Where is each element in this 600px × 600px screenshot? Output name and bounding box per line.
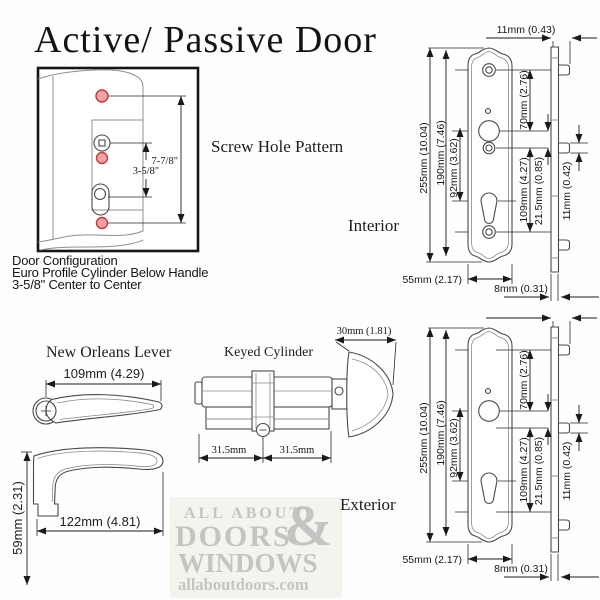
- screw-hole-pattern-heading: Screw Hole Pattern: [211, 137, 343, 157]
- dim-plate-thickness: 8mm (0.31): [494, 563, 548, 575]
- dim-backset-depth: 11mm (0.43): [497, 24, 556, 36]
- screw-hole-marker: [97, 218, 108, 229]
- exterior-view-label: Exterior: [340, 495, 396, 515]
- dim-plate-thickness: 8mm (0.31): [494, 283, 548, 295]
- door-configuration-caption: Door Configuration Euro Profile Cylinder…: [12, 255, 208, 291]
- screw-hole-pattern-diagram: 7-7/8" 3-5/8": [38, 68, 198, 251]
- thumbturn: [332, 352, 393, 437]
- dim-plate-width: 55mm (2.17): [402, 554, 462, 566]
- dim-boss-depth: 11mm (0.42): [561, 442, 573, 501]
- dim-cylinder-half-right: 31.5mm: [280, 445, 315, 456]
- dim-lever-length-top: 109mm (4.29): [64, 366, 145, 381]
- technical-drawing: 7-7/8" 3-5/8" 109mm (4.29) 122mm (4.81) …: [0, 0, 600, 600]
- dim-handle-offset: 21.5mm (0.85): [533, 437, 545, 505]
- dim-center-to-center-short: 3-5/8": [133, 166, 159, 177]
- dim-handle-span: 109mm (4.27): [518, 157, 530, 222]
- dim-boss-depth: 11mm (0.42): [561, 162, 573, 221]
- dim-thumbturn-width: 30mm (1.81): [337, 326, 392, 337]
- dim-lever-height: 59mm (2.31): [10, 481, 25, 555]
- dim-plate-overall: 255mm (10.04): [418, 122, 430, 193]
- cylinder-heading: Keyed Cylinder: [224, 345, 313, 361]
- interior-diagram: 255mm (10.04) 190mm (7.46) 92mm (3.62) 7…: [402, 24, 599, 301]
- cylinder-cam: [252, 371, 274, 431]
- page-title: Active/ Passive Door: [34, 18, 377, 62]
- dim-cylinder-half-left: 31.5mm: [212, 445, 247, 456]
- lever-heading: New Orleans Lever: [46, 344, 171, 362]
- lever-top-view: 109mm (4.29): [33, 366, 162, 424]
- screw-hole-marker: [96, 90, 108, 102]
- product-diagram-page: ALL ABOUT & DOORS WINDOWS allaboutdoors.…: [0, 0, 600, 600]
- lever-side-view: 122mm (4.81) 59mm (2.31): [10, 448, 163, 585]
- dim-handle-to-cylinder: 92mm (3.62): [448, 418, 460, 478]
- dim-plate-overall: 255mm (10.04): [418, 402, 430, 473]
- dim-handle-span: 109mm (4.27): [518, 437, 530, 502]
- dim-screw-to-handle: 70mm (2.76): [518, 350, 530, 410]
- screw-hole-marker: [97, 153, 108, 164]
- dim-handle-offset: 21.5mm (0.85): [533, 157, 545, 225]
- dim-screw-to-handle: 70mm (2.76): [518, 70, 530, 130]
- dim-lever-length-side: 122mm (4.81): [60, 514, 141, 529]
- cylinder-left-cap: [195, 382, 202, 404]
- caption-line: 3-5/8" Center to Center: [12, 279, 208, 291]
- dim-screw-spacing: 190mm (7.46): [435, 120, 447, 185]
- interior-view-label: Interior: [348, 216, 399, 236]
- exterior-diagram: 255mm (10.04) 190mm (7.46) 92mm (3.62) 7…: [402, 318, 599, 581]
- dim-handle-to-cylinder: 92mm (3.62): [448, 138, 460, 198]
- dim-plate-width: 55mm (2.17): [402, 274, 462, 286]
- dim-screw-spacing: 190mm (7.46): [435, 400, 447, 465]
